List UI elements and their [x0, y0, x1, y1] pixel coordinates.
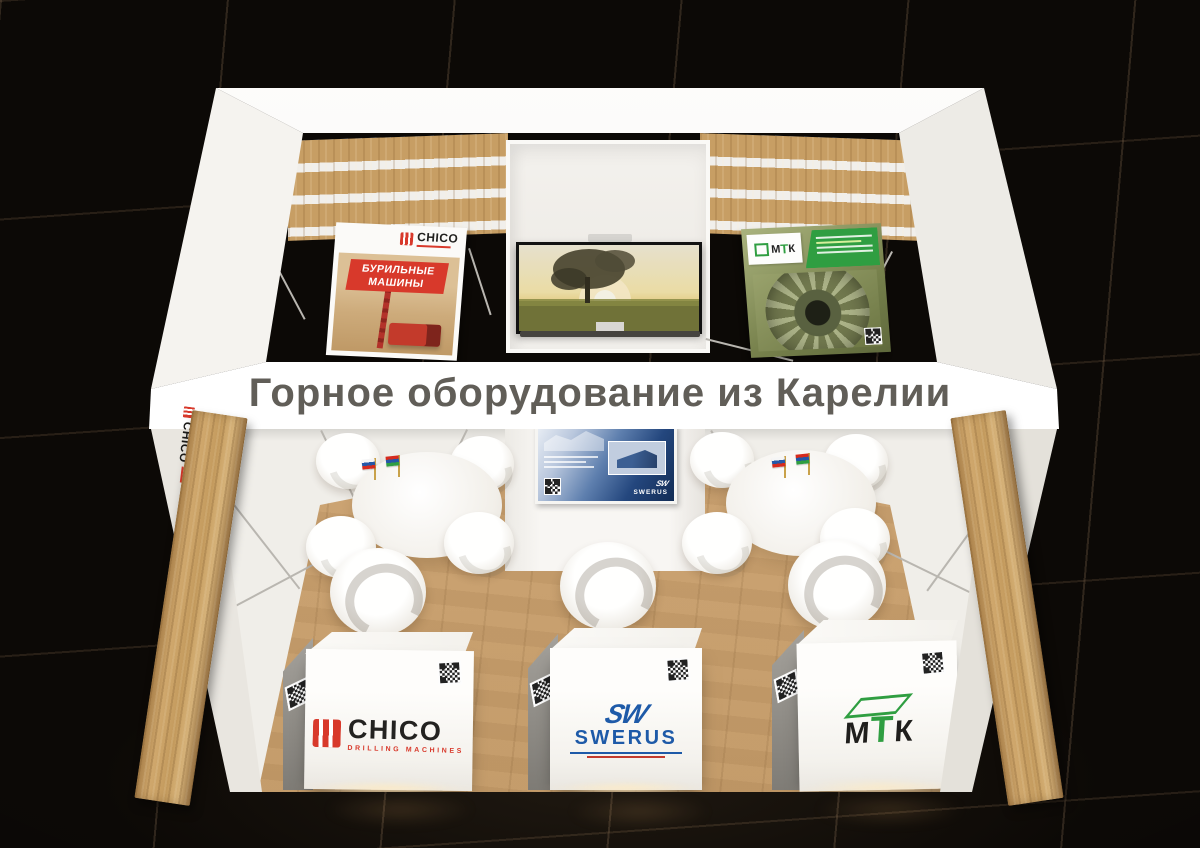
vignette	[0, 0, 1200, 848]
exhibition-booth-render: CHICO БУРИЛЬНЫЕ МАШИНЫ	[0, 0, 1200, 848]
